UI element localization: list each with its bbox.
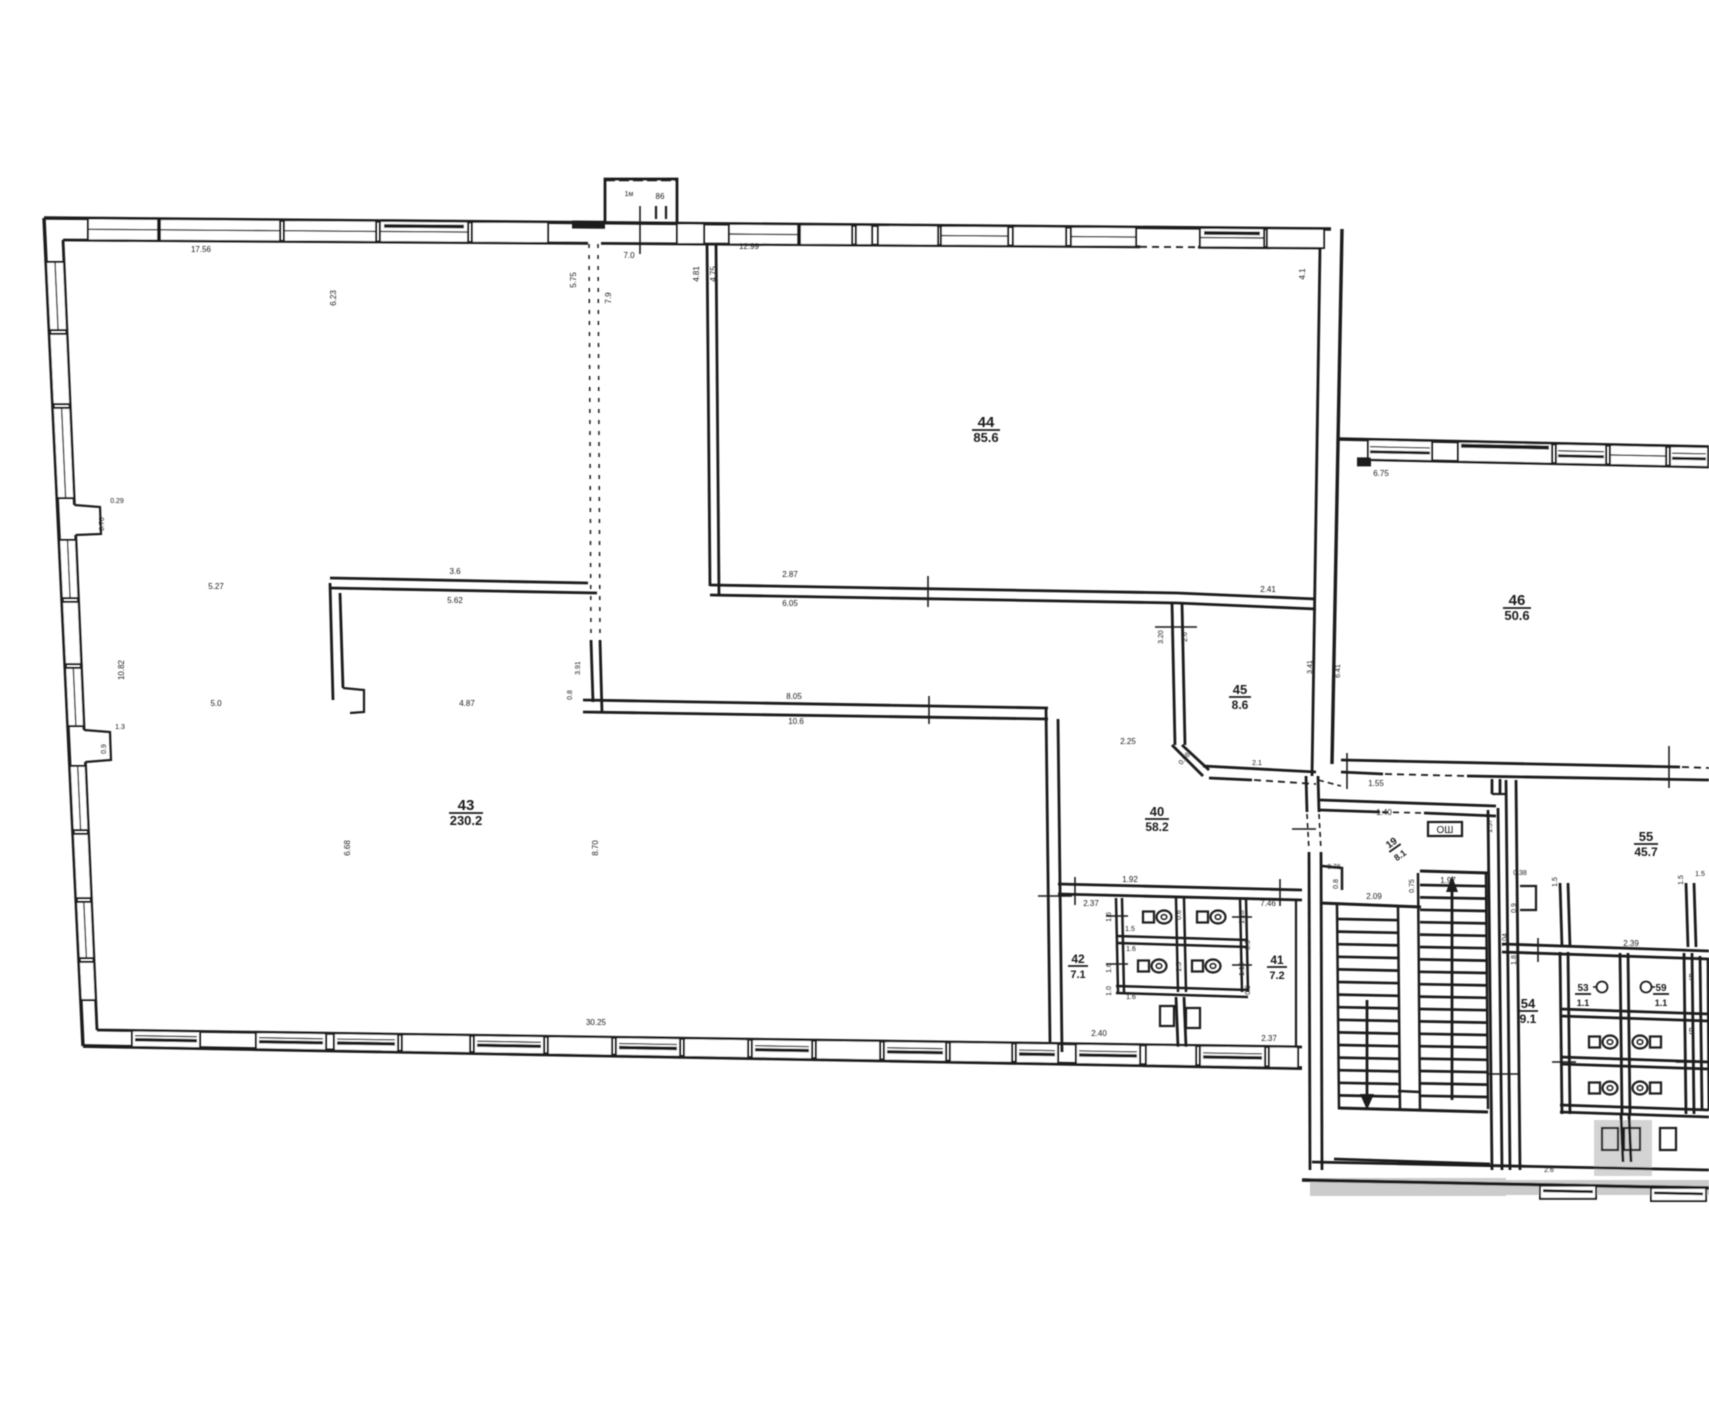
svg-text:8.05: 8.05 — [786, 692, 802, 701]
svg-text:6.05: 6.05 — [782, 599, 798, 608]
svg-text:1.5: 1.5 — [1176, 962, 1183, 972]
svg-text:0.75: 0.75 — [1409, 879, 1416, 893]
svg-text:2.6: 2.6 — [1182, 632, 1189, 642]
svg-text:17.56: 17.56 — [191, 245, 212, 254]
svg-text:42: 42 — [1071, 952, 1085, 966]
svg-text:10.6: 10.6 — [788, 717, 804, 726]
svg-text:ОШ: ОШ — [1437, 825, 1454, 836]
svg-text:1.5: 1.5 — [1125, 926, 1135, 933]
svg-text:7.0: 7.0 — [623, 251, 635, 260]
svg-text:0.6: 0.6 — [1176, 910, 1183, 920]
svg-text:230.2: 230.2 — [450, 813, 483, 828]
svg-text:1.6: 1.6 — [1126, 994, 1136, 1001]
svg-text:2.1: 2.1 — [1252, 760, 1262, 767]
svg-text:1.40: 1.40 — [1376, 808, 1392, 817]
svg-text:2.39: 2.39 — [1623, 939, 1639, 948]
svg-text:12.99: 12.99 — [739, 242, 760, 251]
svg-text:3.6: 3.6 — [449, 567, 461, 576]
svg-text:0.29: 0.29 — [110, 498, 124, 505]
svg-text:1.5: 1.5 — [1678, 875, 1685, 885]
svg-text:1.6: 1.6 — [1106, 963, 1113, 973]
svg-text:1.18: 1.18 — [1239, 910, 1246, 924]
svg-text:10.82: 10.82 — [117, 659, 126, 680]
svg-text:2.40: 2.40 — [1091, 1029, 1107, 1038]
svg-text:1.6: 1.6 — [1126, 946, 1136, 953]
svg-text:2.25: 2.25 — [1120, 737, 1136, 746]
svg-text:0.70: 0.70 — [99, 517, 106, 531]
svg-text:0.38: 0.38 — [1513, 870, 1527, 877]
svg-text:58.2: 58.2 — [1145, 820, 1169, 834]
svg-text:3.20: 3.20 — [1158, 630, 1165, 644]
svg-text:2.87: 2.87 — [782, 570, 798, 579]
svg-text:53: 53 — [1577, 983, 1589, 994]
svg-text:0.9: 0.9 — [1511, 903, 1518, 913]
svg-text:2.37: 2.37 — [1261, 1034, 1277, 1043]
svg-text:59: 59 — [1655, 983, 1667, 994]
svg-text:6.23: 6.23 — [329, 290, 338, 306]
svg-text:4.81: 4.81 — [692, 266, 701, 282]
svg-text:0.8: 0.8 — [567, 690, 574, 700]
svg-text:44: 44 — [978, 414, 995, 431]
svg-text:1.3: 1.3 — [115, 724, 125, 731]
svg-text:1.1: 1.1 — [1577, 998, 1590, 1008]
svg-text:1.97: 1.97 — [1440, 876, 1456, 885]
svg-text:4.87: 4.87 — [459, 699, 475, 708]
svg-text:0.9: 0.9 — [101, 744, 108, 754]
svg-text:0.76: 0.76 — [1327, 864, 1341, 871]
svg-text:50.6: 50.6 — [1504, 608, 1529, 623]
svg-text:2.6: 2.6 — [1544, 1167, 1554, 1174]
svg-text:7.46: 7.46 — [1260, 899, 1276, 908]
svg-text:54: 54 — [1521, 996, 1536, 1011]
svg-text:7.1: 7.1 — [1070, 969, 1085, 981]
svg-text:1.57: 1.57 — [1487, 819, 1494, 833]
svg-text:0.9: 0.9 — [1245, 985, 1252, 995]
svg-text:40: 40 — [1150, 804, 1164, 819]
svg-text:0.9: 0.9 — [1245, 940, 1252, 950]
svg-text:6.75: 6.75 — [1373, 469, 1389, 478]
svg-text:1.92: 1.92 — [1122, 875, 1138, 884]
svg-text:45.7: 45.7 — [1634, 845, 1658, 859]
svg-text:1.8: 1.8 — [1511, 955, 1518, 965]
svg-text:5: 5 — [1689, 1027, 1694, 1036]
svg-text:43: 43 — [458, 797, 475, 814]
svg-text:5.0: 5.0 — [210, 699, 222, 708]
svg-text:8.6: 8.6 — [1232, 698, 1249, 712]
svg-text:1.0: 1.0 — [1106, 986, 1113, 996]
svg-text:1м: 1м — [625, 191, 634, 198]
svg-text:1.15: 1.15 — [1239, 962, 1246, 976]
svg-text:1.5: 1.5 — [1695, 871, 1705, 878]
svg-text:7.9: 7.9 — [604, 292, 613, 304]
svg-text:5.62: 5.62 — [447, 596, 463, 605]
svg-text:2.41: 2.41 — [1260, 585, 1276, 594]
svg-text:3.41: 3.41 — [1307, 660, 1314, 674]
svg-text:7.2: 7.2 — [1269, 970, 1284, 982]
svg-text:46: 46 — [1509, 592, 1526, 609]
svg-text:4.1: 4.1 — [1298, 268, 1307, 280]
svg-text:2.37: 2.37 — [1083, 899, 1099, 908]
svg-text:1.6: 1.6 — [1106, 912, 1113, 922]
svg-text:9.1: 9.1 — [1520, 1012, 1537, 1026]
svg-text:45: 45 — [1233, 682, 1247, 697]
svg-text:30.25: 30.25 — [586, 1018, 607, 1027]
svg-text:1.04: 1.04 — [1502, 933, 1509, 947]
svg-text:85.6: 85.6 — [973, 430, 998, 445]
svg-text:1.5: 1.5 — [1552, 877, 1559, 887]
svg-text:6.41: 6.41 — [1335, 664, 1342, 678]
svg-text:8.1: 8.1 — [1392, 848, 1408, 863]
svg-text:8.70: 8.70 — [591, 840, 600, 856]
svg-text:5.27: 5.27 — [208, 582, 224, 591]
svg-text:1.1: 1.1 — [1655, 998, 1668, 1008]
svg-text:2.09: 2.09 — [1366, 892, 1382, 901]
svg-text:5: 5 — [1689, 973, 1694, 982]
svg-text:55: 55 — [1639, 829, 1653, 844]
svg-text:41: 41 — [1270, 953, 1284, 967]
svg-text:19: 19 — [1384, 836, 1400, 852]
svg-text:6.68: 6.68 — [343, 840, 352, 856]
svg-text:3.91: 3.91 — [575, 661, 582, 675]
svg-text:86: 86 — [656, 192, 665, 201]
svg-text:0.8: 0.8 — [1333, 879, 1340, 889]
svg-text:4.75: 4.75 — [709, 266, 718, 282]
svg-text:5.75: 5.75 — [569, 272, 578, 288]
svg-text:1.55: 1.55 — [1368, 779, 1384, 788]
